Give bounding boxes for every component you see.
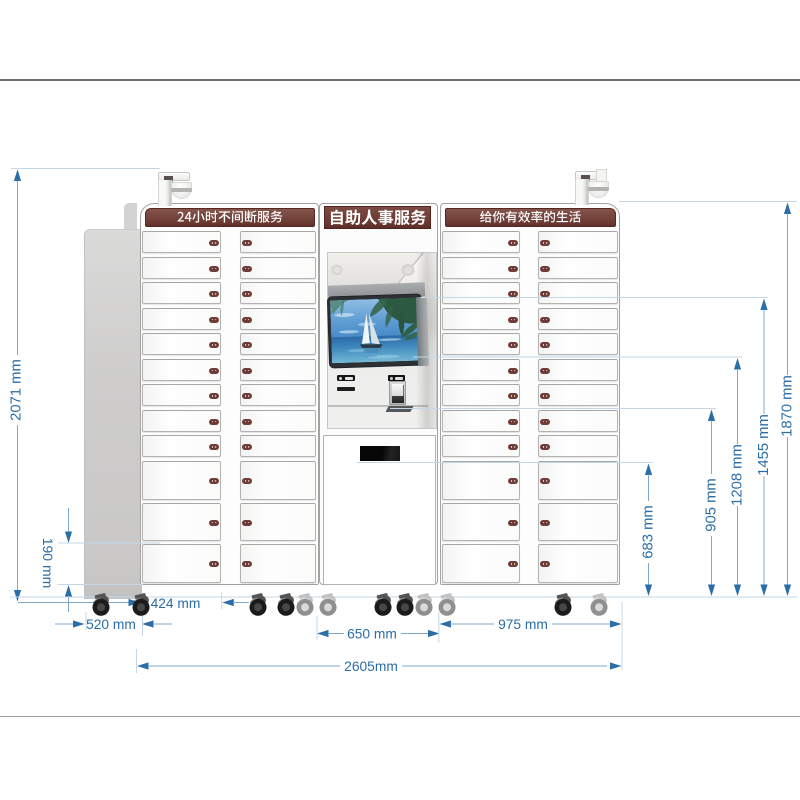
svg-text:190 mm: 190 mm: [40, 538, 56, 589]
svg-text:520 mm: 520 mm: [86, 617, 136, 632]
svg-text:1870 mm: 1870 mm: [780, 375, 796, 437]
svg-text:2071 mm: 2071 mm: [9, 359, 25, 421]
svg-text:683 mm: 683 mm: [641, 505, 657, 558]
svg-text:424 mm: 424 mm: [151, 596, 201, 611]
svg-text:2605mm: 2605mm: [344, 659, 398, 674]
svg-text:1208 mm: 1208 mm: [730, 444, 746, 506]
svg-text:905 mm: 905 mm: [704, 478, 720, 531]
svg-text:975 mm: 975 mm: [498, 617, 548, 632]
svg-text:1455 mm: 1455 mm: [756, 414, 772, 476]
svg-text:650 mm: 650 mm: [347, 627, 397, 642]
